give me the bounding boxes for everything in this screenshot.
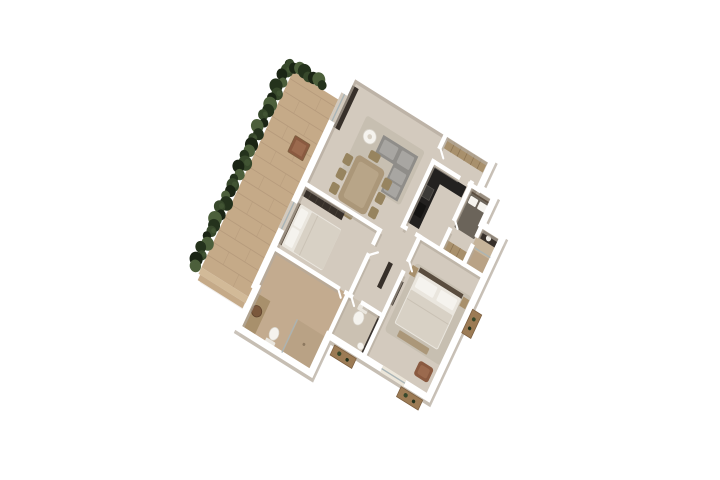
floorplan-render xyxy=(0,0,720,480)
interior-wall xyxy=(403,226,405,228)
